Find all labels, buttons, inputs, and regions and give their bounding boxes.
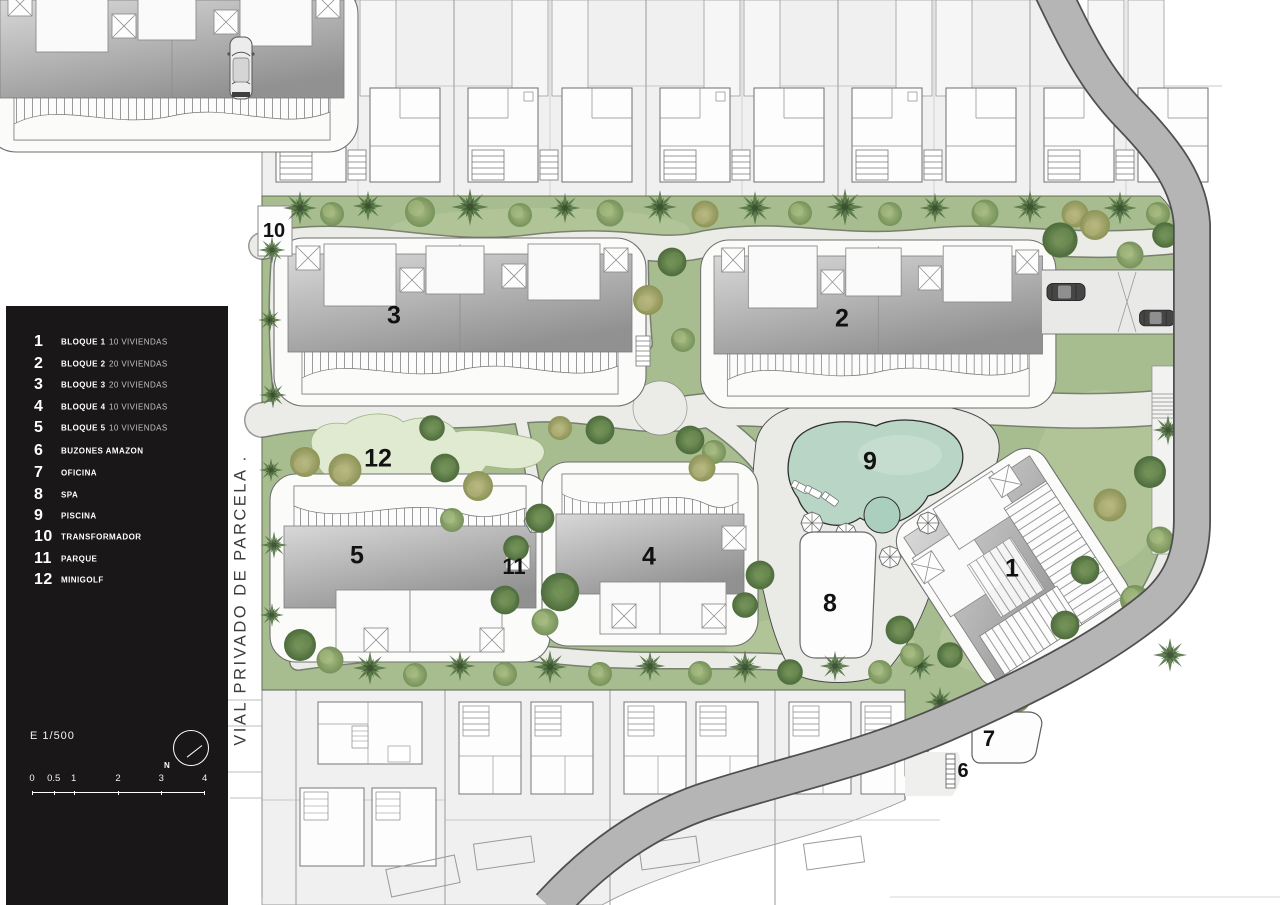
legend-item-piscina: 9 PISCINA [32, 505, 228, 527]
legend-num: 8 [34, 486, 43, 504]
legend-panel: 1 BLOQUE 1 10 VIVIENDAS 2 BLOQUE 2 20 VI… [6, 306, 228, 905]
legend-detail: 10 VIVIENDAS [109, 338, 168, 347]
legend-label: SPA [61, 491, 78, 500]
driveway-parking [1042, 270, 1178, 334]
parked-car-icon [1140, 310, 1175, 326]
legend-item-transformador: 10 TRANSFORMADOR [32, 526, 228, 548]
legend-item-bloque-2: 2 BLOQUE 2 20 VIVIENDAS [32, 353, 228, 375]
legend-item-bloque-3: 3 BLOQUE 3 20 VIVIENDAS [32, 374, 228, 396]
legend-num: 9 [34, 507, 43, 525]
scale-tick: 1 [71, 773, 76, 784]
car-icon [227, 37, 254, 99]
legend-detail: 20 VIVIENDAS [109, 381, 168, 390]
legend-label: BLOQUE 3 [61, 381, 106, 390]
road-label: VIAL PRIVADO DE PARCELA . [232, 454, 251, 745]
legend-label: BLOQUE 1 [61, 338, 106, 347]
legend-label: BLOQUE 4 [61, 403, 106, 412]
marker-minigolf: 12 [364, 447, 392, 472]
scale-tick: 2 [115, 773, 120, 784]
north-compass-icon [173, 730, 209, 766]
legend-item-buzones: 6 BUZONES AMAZON [32, 440, 228, 462]
legend-item-bloque-5: 5 BLOQUE 5 10 VIVIENDAS [32, 417, 228, 439]
legend-num: 7 [34, 464, 43, 482]
apartment-block-template [0, 0, 358, 152]
scale-tick: 3 [159, 773, 164, 784]
marker-parque: 11 [502, 556, 525, 578]
legend-num: 10 [34, 528, 53, 546]
legend-item-bloque-1: 1 BLOQUE 1 10 VIVIENDAS [32, 331, 228, 353]
scale-tick: 0 [29, 773, 34, 784]
kids-pool [864, 497, 900, 533]
stairs-icon [636, 336, 650, 366]
site-plan-page: 1 2 3 4 5 6 7 8 9 10 11 12 VIAL PRIVADO … [0, 0, 1280, 905]
marker-bloque-1: 1 [1005, 557, 1019, 582]
marker-transformador: 10 [263, 221, 285, 241]
scale-tick: 4 [202, 773, 207, 784]
marker-piscina: 9 [863, 450, 877, 475]
legend-label: MINIGOLF [61, 576, 104, 585]
legend-detail: 10 VIVIENDAS [109, 424, 168, 433]
legend-item-bloque-4: 4 BLOQUE 4 10 VIVIENDAS [32, 396, 228, 418]
legend-item-spa: 8 SPA [32, 484, 228, 506]
legend-num: 5 [34, 419, 43, 437]
legend-label: OFICINA [61, 469, 97, 478]
legend-num: 11 [34, 550, 52, 568]
legend-num: 3 [34, 376, 43, 394]
legend-detail: 10 VIVIENDAS [109, 403, 168, 412]
north-needle [187, 745, 203, 757]
legend-item-oficina: 7 OFICINA [32, 462, 228, 484]
legend-item-parque: 11 PARQUE [32, 548, 228, 570]
legend-num: 2 [34, 355, 43, 373]
scale-tick: 0.5 [47, 773, 60, 784]
marker-bloque-2: 2 [835, 307, 849, 332]
building-bloque-2 [701, 240, 1056, 408]
legend-num: 12 [34, 571, 53, 589]
marker-bloque-3: 3 [387, 304, 401, 329]
legend-label: BLOQUE 5 [61, 424, 106, 433]
north-label: N [164, 761, 170, 770]
legend-num: 4 [34, 398, 43, 416]
marker-buzones: 6 [957, 761, 968, 781]
scale-bar: 0 0.5 1 2 3 4 [32, 774, 205, 793]
legend-detail: 20 VIVIENDAS [109, 360, 168, 369]
legend-label: TRANSFORMADOR [61, 533, 142, 542]
marker-oficina: 7 [983, 728, 995, 750]
legend-label: BUZONES AMAZON [61, 447, 143, 456]
spa-building [800, 532, 876, 658]
legend-num: 1 [34, 333, 43, 351]
marker-bloque-5: 5 [350, 544, 364, 569]
legend-label: PARQUE [61, 555, 97, 564]
scale-text: E 1/500 [30, 730, 75, 742]
parked-car-icon [1047, 284, 1085, 301]
marker-spa: 8 [823, 592, 837, 617]
building-bloque-3 [274, 238, 646, 406]
legend-label: PISCINA [61, 512, 97, 521]
marker-bloque-4: 4 [642, 545, 656, 570]
legend-item-minigolf: 12 MINIGOLF [32, 569, 228, 591]
legend-num: 6 [34, 442, 43, 460]
legend-label: BLOQUE 2 [61, 360, 106, 369]
